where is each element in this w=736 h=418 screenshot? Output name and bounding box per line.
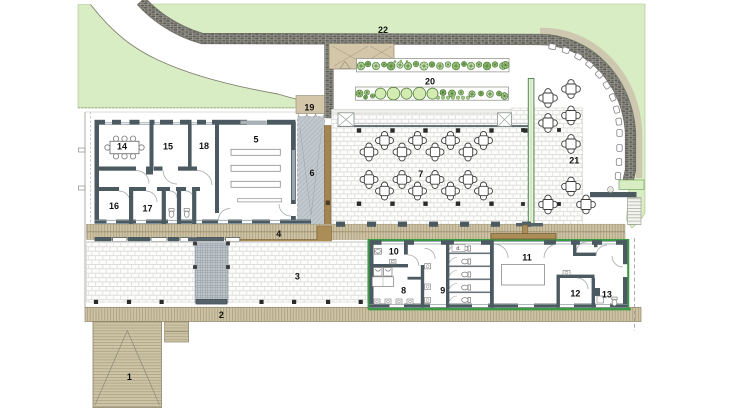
- svg-text:16: 16: [109, 201, 119, 211]
- svg-text:19: 19: [304, 103, 314, 113]
- svg-text:22: 22: [378, 25, 388, 35]
- svg-text:17: 17: [142, 204, 152, 214]
- svg-text:21: 21: [569, 156, 579, 166]
- svg-text:20: 20: [425, 77, 435, 87]
- svg-text:5: 5: [253, 135, 258, 145]
- svg-text:4: 4: [276, 229, 281, 239]
- svg-text:15: 15: [163, 142, 173, 152]
- svg-text:18: 18: [199, 141, 209, 151]
- svg-text:12: 12: [570, 289, 580, 299]
- svg-text:11: 11: [522, 253, 532, 263]
- svg-text:2: 2: [219, 310, 224, 320]
- svg-text:13: 13: [602, 290, 612, 300]
- svg-text:d.: d.: [456, 246, 460, 252]
- svg-text:9: 9: [440, 286, 445, 296]
- svg-text:3: 3: [295, 272, 300, 282]
- svg-text:10: 10: [389, 247, 399, 257]
- svg-text:8: 8: [401, 286, 406, 296]
- svg-text:7: 7: [418, 169, 423, 179]
- svg-text:6: 6: [309, 168, 314, 178]
- svg-text:14: 14: [117, 142, 127, 152]
- svg-text:1: 1: [127, 372, 132, 382]
